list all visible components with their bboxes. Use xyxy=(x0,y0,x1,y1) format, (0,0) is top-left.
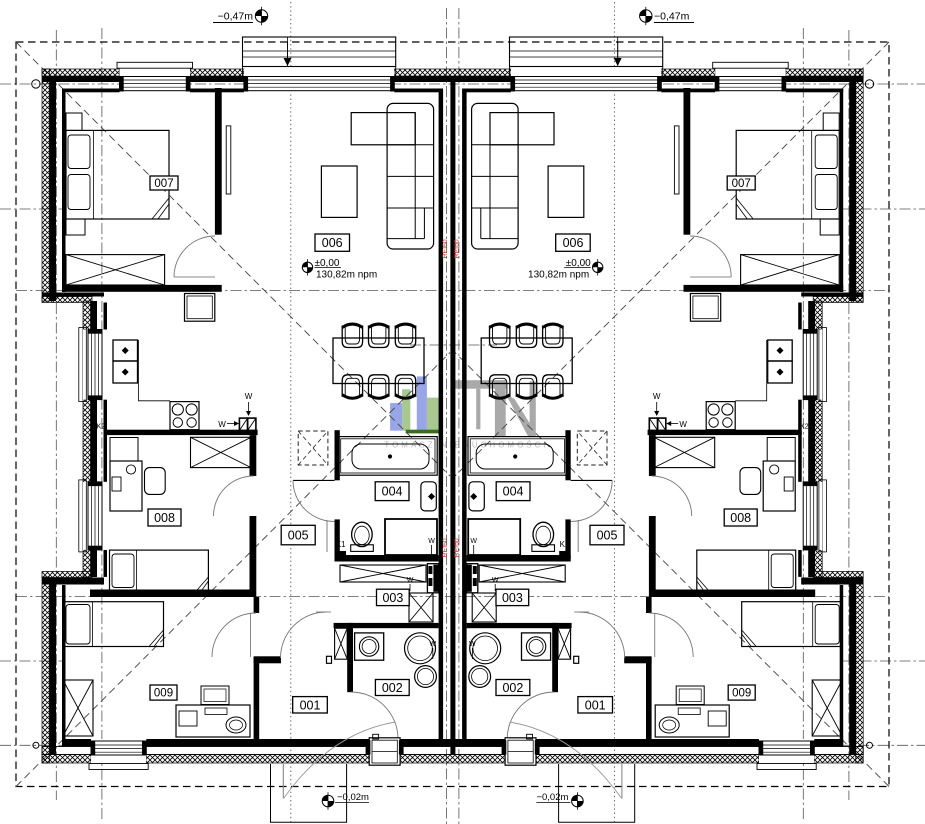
svg-text:002: 002 xyxy=(502,681,523,695)
svg-text:W: W xyxy=(653,392,661,401)
svg-text:W: W xyxy=(245,392,253,401)
svg-text:004: 004 xyxy=(382,485,403,499)
svg-text:003: 003 xyxy=(502,591,523,605)
svg-text:K2: K2 xyxy=(97,424,106,431)
svg-text:008: 008 xyxy=(154,511,175,525)
svg-text:009: 009 xyxy=(154,688,173,700)
svg-text:−0,47m: −0,47m xyxy=(654,11,690,23)
svg-text:005: 005 xyxy=(288,529,309,543)
svg-text:−0,47m: −0,47m xyxy=(218,11,254,23)
svg-text:W: W xyxy=(469,641,476,648)
svg-text:W: W xyxy=(492,577,499,584)
svg-text:REI60: REI60 xyxy=(442,239,449,258)
svg-text:009: 009 xyxy=(732,688,751,700)
svg-text:W: W xyxy=(470,538,477,545)
svg-text:006: 006 xyxy=(322,236,343,250)
svg-text:K1: K1 xyxy=(336,540,346,549)
svg-text:REI60: REI60 xyxy=(453,538,460,557)
svg-text:W: W xyxy=(679,420,687,429)
svg-text:001: 001 xyxy=(300,698,321,712)
svg-text:006: 006 xyxy=(563,236,584,250)
svg-text:004: 004 xyxy=(503,485,524,499)
svg-text:005: 005 xyxy=(597,529,618,543)
svg-text:007: 007 xyxy=(732,178,751,190)
svg-text:K1: K1 xyxy=(560,540,570,549)
svg-text:K2: K2 xyxy=(800,424,809,431)
svg-text:008: 008 xyxy=(730,511,751,525)
svg-text:002: 002 xyxy=(382,681,403,695)
svg-text:130,82m npm: 130,82m npm xyxy=(528,270,589,281)
svg-text:−0,02m: −0,02m xyxy=(536,792,568,803)
svg-text:003: 003 xyxy=(382,591,403,605)
svg-text:−0,02m: −0,02m xyxy=(337,792,369,803)
svg-text:W: W xyxy=(429,641,436,648)
svg-text:W: W xyxy=(218,420,226,429)
svg-text:REI60: REI60 xyxy=(442,538,449,557)
svg-text:REI60: REI60 xyxy=(453,239,460,258)
svg-text:001: 001 xyxy=(585,698,606,712)
svg-text:W: W xyxy=(407,577,414,584)
svg-text:007: 007 xyxy=(154,178,173,190)
svg-text:130,82m npm: 130,82m npm xyxy=(316,270,377,281)
svg-text:W: W xyxy=(428,538,435,545)
